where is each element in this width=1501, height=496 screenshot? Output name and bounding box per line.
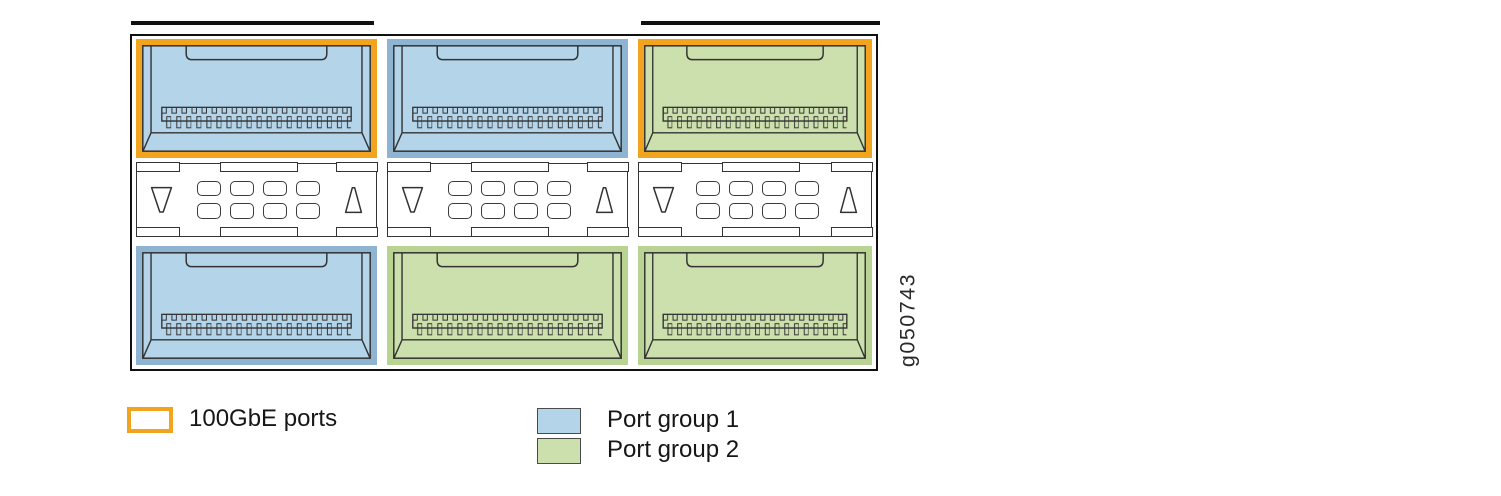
module-column-left xyxy=(136,39,377,366)
led-indicator xyxy=(481,203,505,219)
panel-tab xyxy=(136,227,180,237)
led-grid xyxy=(448,181,571,219)
panel-tab xyxy=(220,227,298,237)
legend-label-100gbe-ports: 100GbE ports xyxy=(189,405,337,432)
panel-tab xyxy=(471,227,549,237)
led-indicator xyxy=(514,181,538,197)
led-indicator xyxy=(263,203,287,219)
legend-swatch-100gbe-ports xyxy=(127,407,173,433)
led-indicator xyxy=(729,181,753,197)
up-arrow-icon xyxy=(839,186,858,214)
led-grid xyxy=(197,181,320,219)
panel-tab xyxy=(471,162,549,172)
module-column-center xyxy=(387,39,628,366)
legend-swatch-port-group-1 xyxy=(537,408,581,434)
up-arrow-icon xyxy=(344,186,363,214)
chassis-outline xyxy=(130,34,878,371)
status-panel-center xyxy=(387,163,628,237)
panel-tab xyxy=(638,162,682,172)
led-indicator xyxy=(448,181,472,197)
led-indicator xyxy=(296,203,320,219)
led-indicator xyxy=(296,181,320,197)
panel-tab xyxy=(136,162,180,172)
led-indicator xyxy=(547,203,571,219)
panel-tab xyxy=(336,162,378,172)
legend-label-port-group-2: Port group 2 xyxy=(607,436,739,463)
led-indicator xyxy=(448,203,472,219)
module-column-right xyxy=(638,39,872,366)
panel-tab xyxy=(336,227,378,237)
top-rule-left xyxy=(131,21,374,25)
led-indicator xyxy=(481,181,505,197)
panel-tab xyxy=(831,162,873,172)
panel-tab xyxy=(220,162,298,172)
port-module-bottom-left xyxy=(136,246,377,365)
down-arrow-icon xyxy=(401,186,424,214)
led-indicator xyxy=(197,203,221,219)
figure-canvas: g050743 100GbE ports Port group 1 Port g… xyxy=(0,0,1501,496)
port-module-top-left-100gbe xyxy=(136,39,377,158)
panel-tab xyxy=(387,162,431,172)
led-indicator xyxy=(795,181,819,197)
led-indicator xyxy=(230,181,254,197)
panel-tab xyxy=(831,227,873,237)
panel-tab xyxy=(722,227,800,237)
top-rule-right xyxy=(641,21,880,25)
figure-id: g050743 xyxy=(896,273,921,367)
port-module-bottom-right xyxy=(638,246,872,365)
panel-tab xyxy=(387,227,431,237)
up-arrow-icon xyxy=(595,186,614,214)
panel-tab xyxy=(722,162,800,172)
port-module-bottom-center xyxy=(387,246,628,365)
led-indicator xyxy=(696,203,720,219)
down-arrow-icon xyxy=(652,186,675,214)
led-indicator xyxy=(263,181,287,197)
led-indicator xyxy=(197,181,221,197)
port-module-top-center xyxy=(387,39,628,158)
led-indicator xyxy=(762,181,786,197)
port-module-top-right-100gbe xyxy=(638,39,872,158)
led-indicator xyxy=(230,203,254,219)
led-indicator xyxy=(547,181,571,197)
down-arrow-icon xyxy=(150,186,173,214)
led-indicator xyxy=(696,181,720,197)
status-panel-right xyxy=(638,163,872,237)
led-indicator xyxy=(514,203,538,219)
legend-label-port-group-1: Port group 1 xyxy=(607,406,739,433)
status-panel-left xyxy=(136,163,377,237)
panel-tab xyxy=(587,162,629,172)
led-indicator xyxy=(729,203,753,219)
panel-tab xyxy=(638,227,682,237)
legend-swatch-port-group-2 xyxy=(537,438,581,464)
led-grid xyxy=(696,181,819,219)
led-indicator xyxy=(762,203,786,219)
panel-tab xyxy=(587,227,629,237)
led-indicator xyxy=(795,203,819,219)
